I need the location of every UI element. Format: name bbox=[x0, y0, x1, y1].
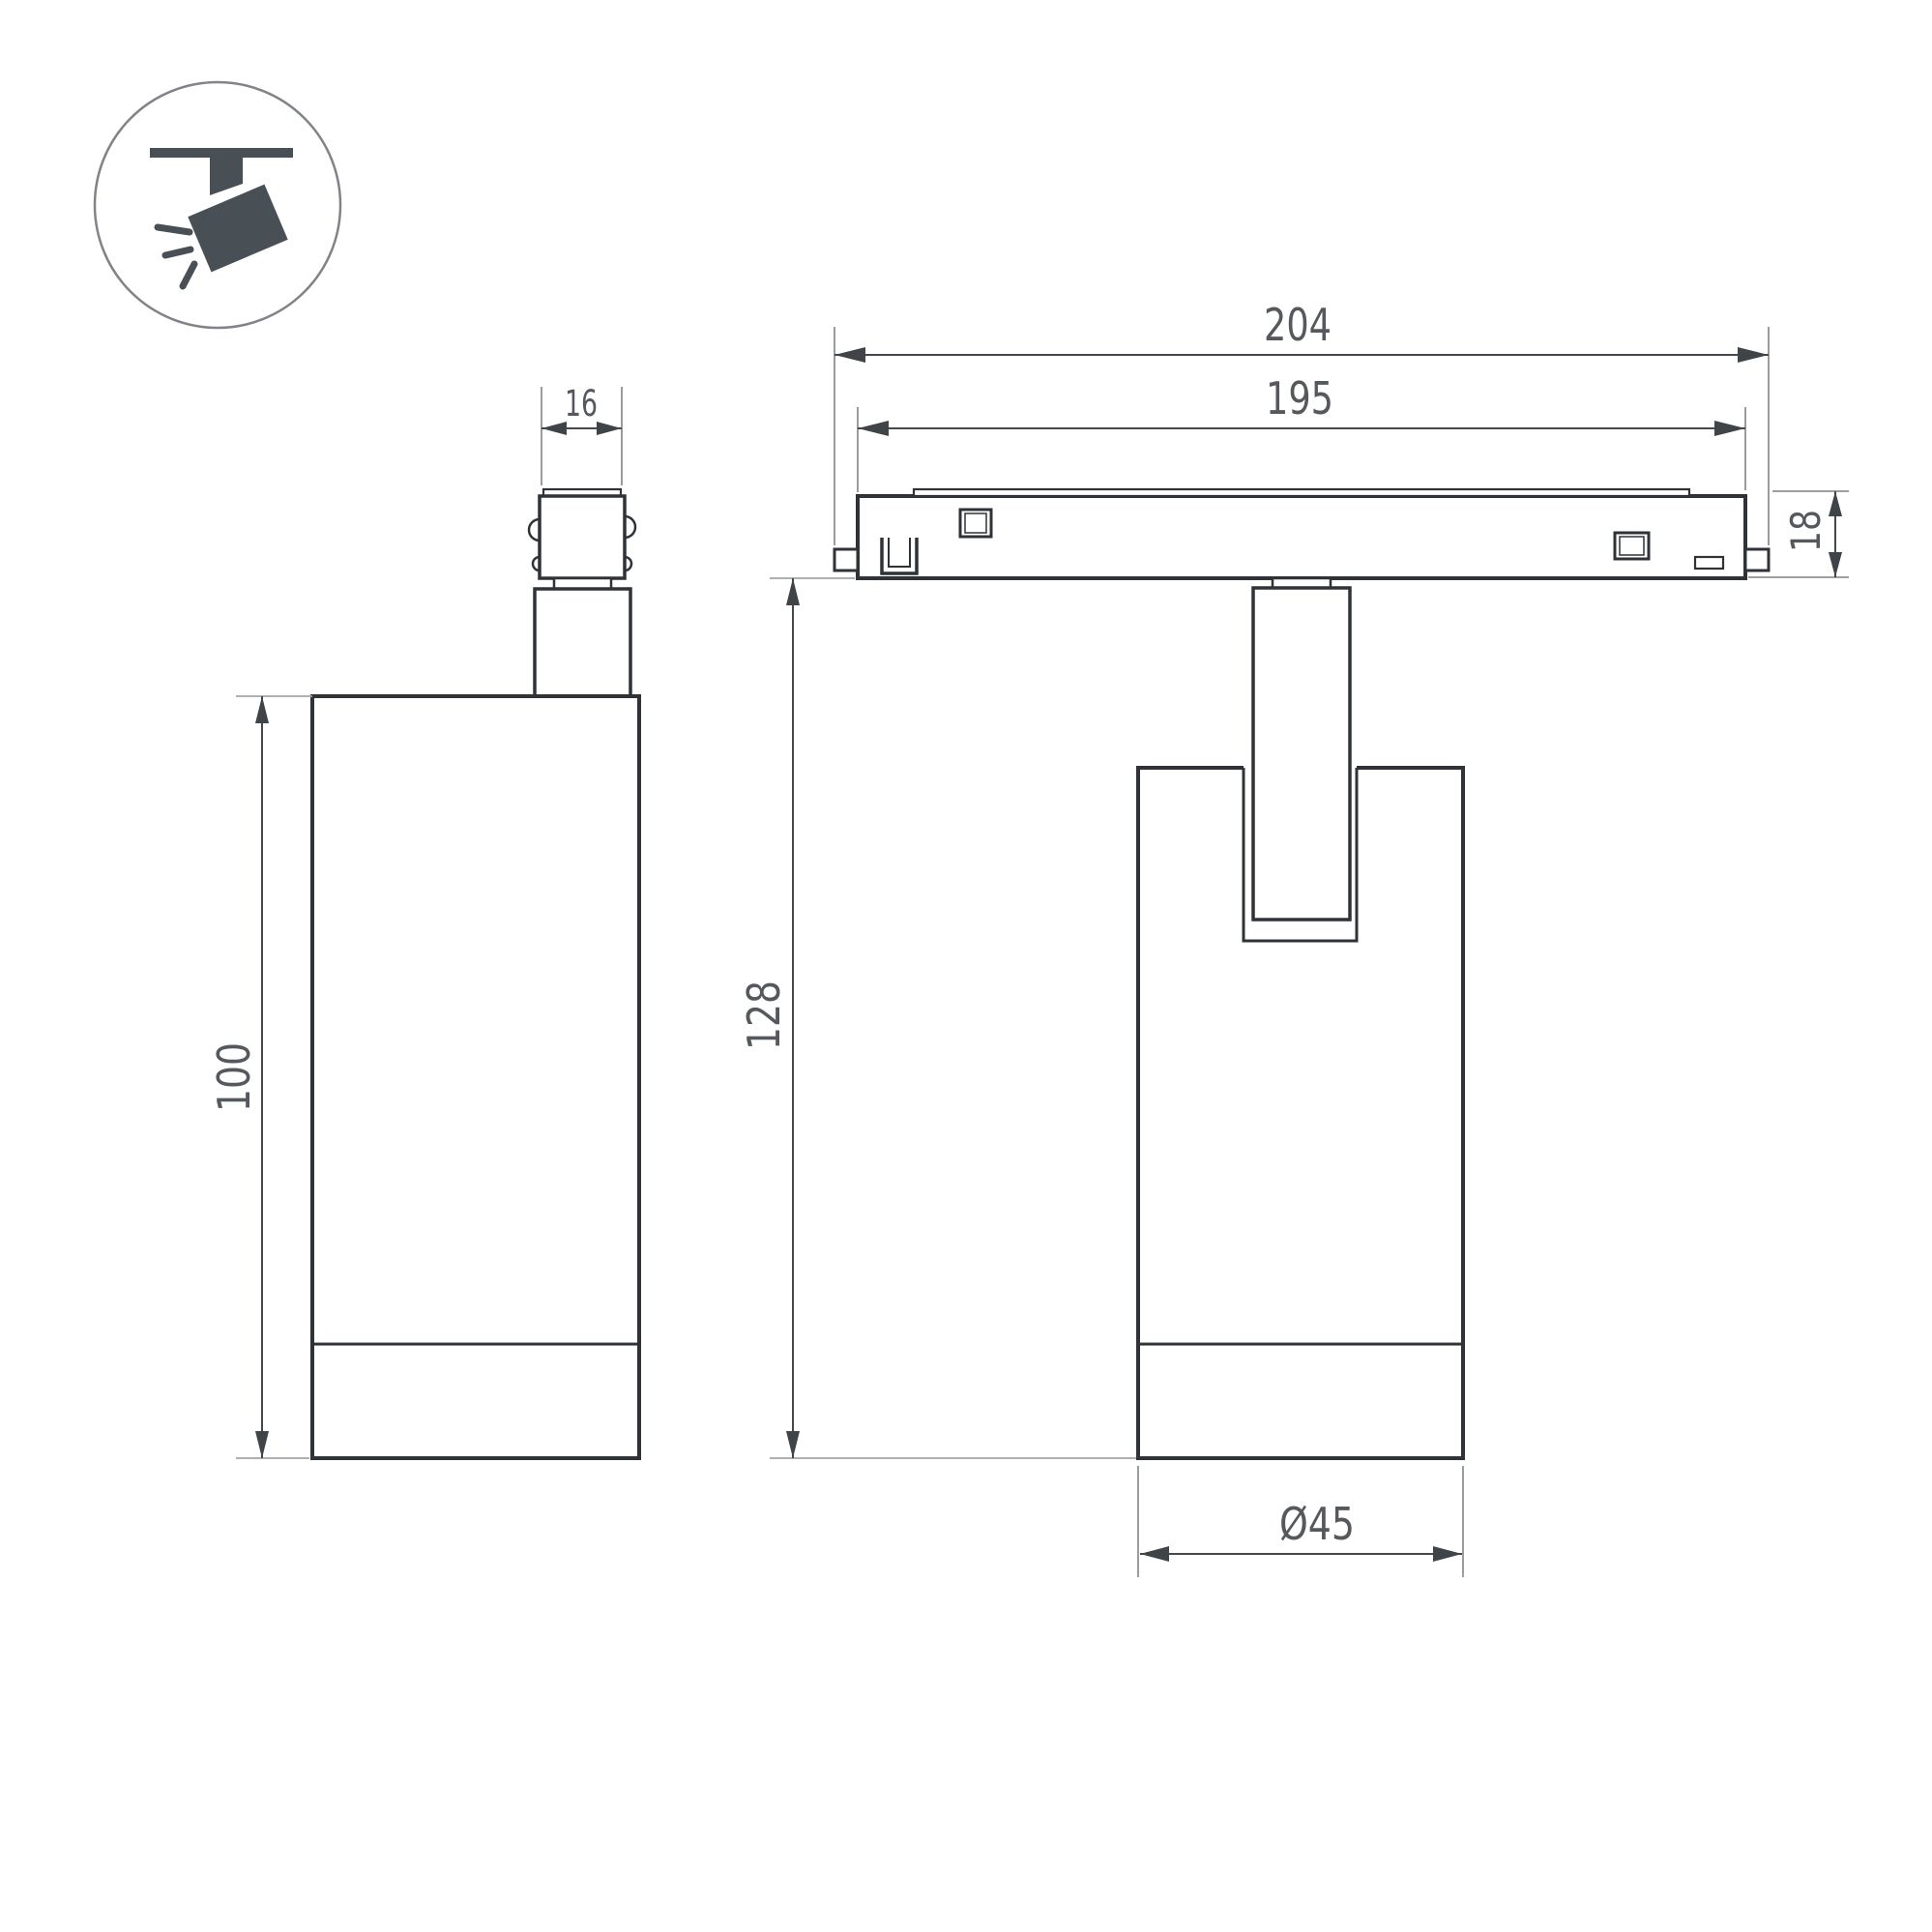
dim-body-height: 100 bbox=[208, 696, 312, 1458]
dim-label-195: 195 bbox=[1266, 372, 1333, 424]
icon-ceiling-bar bbox=[150, 148, 293, 158]
drawing-canvas: 16 100 bbox=[0, 0, 1932, 1932]
dim-connector-width: 16 bbox=[542, 383, 622, 485]
side-view-stem bbox=[535, 589, 630, 696]
dim-label-18: 18 bbox=[1782, 510, 1830, 552]
dimension-drawing-svg: 16 100 bbox=[0, 0, 1932, 1932]
dim-fixture-height: 128 bbox=[738, 578, 1136, 1458]
dim-body-diameter: Ø45 bbox=[1138, 1466, 1463, 1577]
dim-label-100: 100 bbox=[208, 1042, 260, 1112]
track-end-tab-right bbox=[1745, 549, 1769, 571]
side-view: 16 100 bbox=[208, 383, 639, 1458]
track-top-strip bbox=[914, 489, 1689, 496]
track-end-tab-left bbox=[834, 549, 858, 571]
front-view-stem bbox=[1253, 588, 1350, 920]
dim-rail-length: 195 bbox=[858, 372, 1745, 492]
icon-light-rays bbox=[158, 227, 194, 286]
dim-label-diameter-45: Ø45 bbox=[1279, 1498, 1355, 1550]
dim-label-204: 204 bbox=[1264, 299, 1332, 351]
icon-lamp-body bbox=[188, 185, 287, 273]
front-view: 204 195 18 128 bbox=[738, 299, 1849, 1577]
dim-label-16: 16 bbox=[565, 383, 598, 424]
track-spotlight-icon bbox=[95, 82, 340, 328]
icon-track-stem bbox=[210, 158, 243, 195]
track-slot-right bbox=[1695, 557, 1723, 569]
side-view-connector bbox=[540, 496, 625, 578]
dim-label-128: 128 bbox=[738, 981, 790, 1050]
